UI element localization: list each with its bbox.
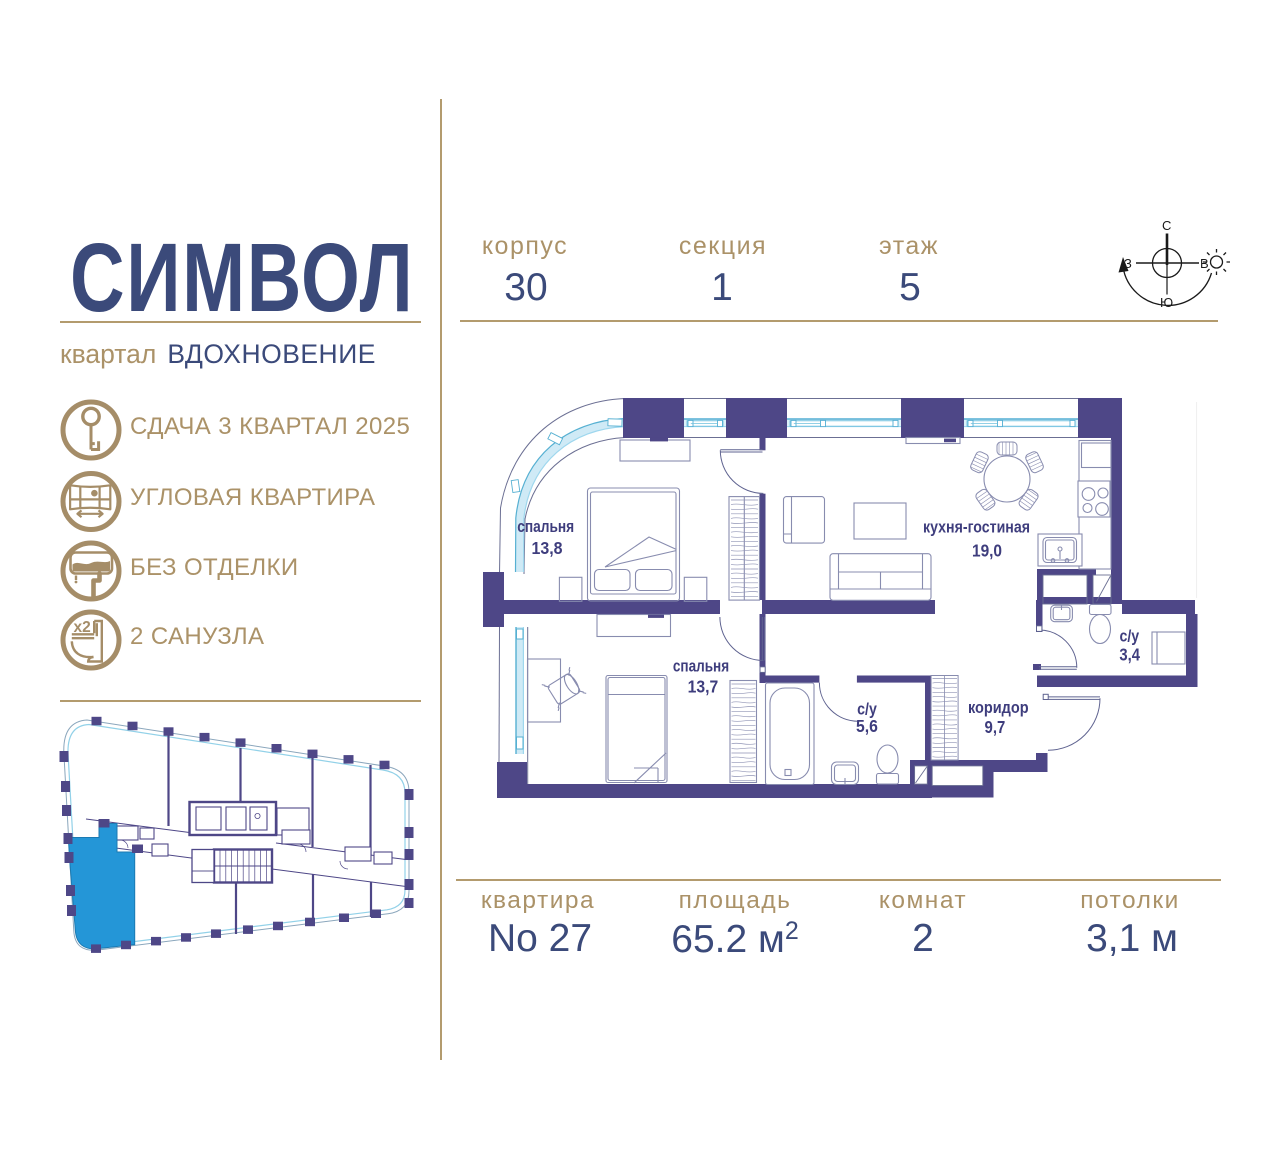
- svg-text:В: В: [1200, 256, 1209, 271]
- svg-text:С: С: [1162, 218, 1171, 233]
- svg-text:спальня: спальня: [517, 518, 574, 536]
- svg-text:13,8: 13,8: [532, 538, 563, 558]
- svg-text:13,7: 13,7: [688, 677, 719, 697]
- svg-text:Ю: Ю: [1160, 295, 1173, 310]
- svg-text:спальня: спальня: [673, 657, 729, 675]
- svg-text:кухня-гостиная: кухня-гостиная: [923, 518, 1030, 537]
- svg-text:5,6: 5,6: [856, 716, 878, 736]
- svg-text:с/у: с/у: [1119, 628, 1139, 646]
- svg-text:коридор: коридор: [968, 699, 1029, 717]
- svg-text:19,0: 19,0: [972, 540, 1002, 560]
- svg-text:3,4: 3,4: [1119, 645, 1140, 665]
- svg-text:9,7: 9,7: [985, 717, 1006, 737]
